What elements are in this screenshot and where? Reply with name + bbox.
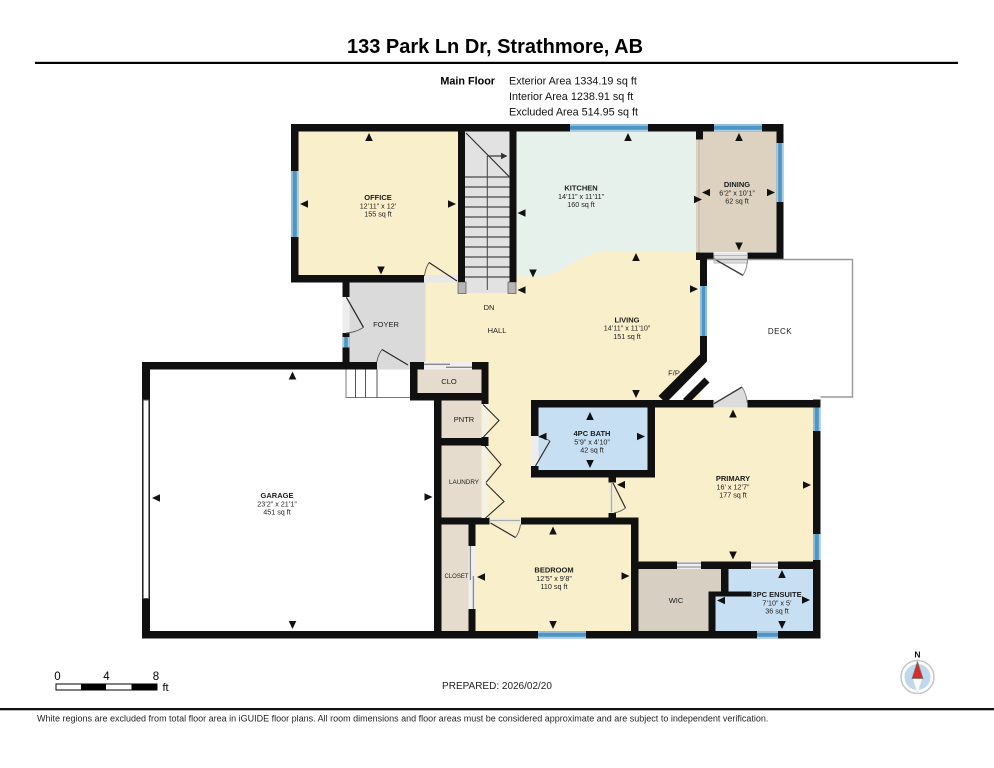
svg-text:160 sq ft: 160 sq ft (567, 200, 595, 209)
svg-text:CLOSET: CLOSET (444, 574, 468, 580)
svg-text:Excluded Area 514.95 sq ft: Excluded Area 514.95 sq ft (509, 107, 638, 119)
svg-text:Main Floor: Main Floor (440, 76, 495, 88)
svg-text:DN: DN (484, 303, 495, 312)
svg-text:177 sq ft: 177 sq ft (719, 491, 747, 500)
svg-text:White regions are excluded fro: White regions are excluded from total fl… (37, 714, 768, 724)
svg-text:151 sq ft: 151 sq ft (613, 332, 641, 341)
svg-text:HALL: HALL (488, 326, 507, 335)
svg-text:451 sq ft: 451 sq ft (263, 508, 291, 517)
svg-text:8: 8 (153, 671, 159, 683)
svg-text:62 sq ft: 62 sq ft (725, 197, 749, 206)
svg-text:PNTR: PNTR (454, 415, 475, 424)
svg-text:ft: ft (163, 682, 169, 694)
svg-text:LAUNDRY: LAUNDRY (449, 479, 480, 486)
svg-text:110 sq ft: 110 sq ft (540, 582, 567, 591)
svg-text:F/P: F/P (668, 369, 680, 378)
svg-text:PREPARED: 2026/02/20: PREPARED: 2026/02/20 (442, 681, 552, 692)
svg-text:36 sq ft: 36 sq ft (765, 607, 789, 616)
svg-text:155 sq ft: 155 sq ft (364, 210, 392, 219)
svg-text:42 sq ft: 42 sq ft (580, 446, 604, 455)
svg-text:4: 4 (103, 671, 110, 683)
svg-text:CLO: CLO (441, 377, 457, 386)
svg-text:WIC: WIC (669, 596, 684, 605)
svg-text:133 Park Ln Dr, Strathmore, AB: 133 Park Ln Dr, Strathmore, AB (347, 36, 643, 58)
svg-text:0: 0 (54, 671, 60, 683)
svg-text:Exterior Area 1334.19 sq ft: Exterior Area 1334.19 sq ft (509, 76, 637, 88)
svg-text:Interior Area 1238.91 sq ft: Interior Area 1238.91 sq ft (509, 91, 633, 103)
svg-text:FOYER: FOYER (373, 320, 399, 329)
svg-text:DECK: DECK (768, 327, 792, 336)
svg-text:N: N (914, 650, 920, 660)
